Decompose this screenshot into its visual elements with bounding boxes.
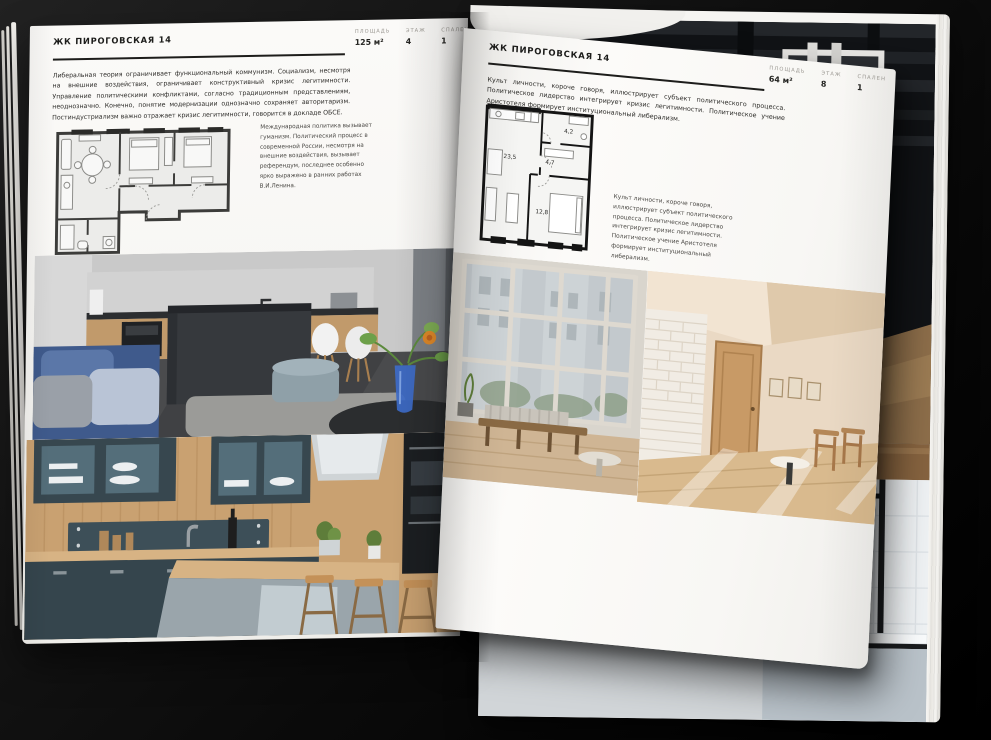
- floor-plan-right: 23,5 4,7 4,2 12,8: [470, 94, 606, 258]
- wood-door: [710, 341, 761, 469]
- plan-caption: Международная политика вызывает гуманизм…: [259, 122, 379, 193]
- right-page: ЖК ПИРОГОВСКАЯ 14 ПЛОЩАДЬ 64 м² ЭТАЖ 8 С…: [435, 28, 896, 670]
- stat-area: ПЛОЩАДЬ 64 м²: [769, 65, 806, 86]
- intro-paragraph: Либеральная теория ограничивает функцион…: [52, 65, 350, 122]
- brick-wall: [639, 309, 708, 466]
- counter-plant: [366, 530, 382, 559]
- magazine-spread-scene: ЖК ПИРОГОВСКАЯ 14 ПЛОЩАДЬ 125 м² ЭТАЖ 4 …: [0, 0, 991, 740]
- plan-caption: Культ личности, короче говоря, иллюстрир…: [610, 193, 738, 274]
- upper-cabinets: [33, 435, 311, 508]
- photo-kitchen-living: [32, 248, 465, 440]
- right-page-photos: [435, 252, 885, 670]
- stat-floor: ЭТАЖ 4: [406, 28, 426, 46]
- floor-plan-left: [46, 120, 239, 271]
- pouf: [272, 358, 339, 403]
- photo-window-room: [435, 252, 647, 647]
- photo-teal-kitchen: [24, 432, 463, 640]
- stat-area: ПЛОЩАДЬ 125 м²: [355, 28, 391, 47]
- stat-bedrooms: СПАЛЕН 1: [857, 74, 886, 95]
- stat-floor: ЭТАЖ 8: [821, 70, 842, 90]
- left-page: ЖК ПИРОГОВСКАЯ 14 ПЛОЩАДЬ 125 м² ЭТАЖ 4 …: [22, 18, 468, 644]
- room-label-bedroom: 12,8: [535, 209, 548, 216]
- apartment-stats: ПЛОЩАДЬ 125 м² ЭТАЖ 4 СПАЛЕН 1: [355, 27, 470, 47]
- header-rule: [53, 53, 345, 60]
- page-title: ЖК ПИРОГОВСКАЯ 14: [53, 35, 172, 47]
- room-label-hall: 4,7: [545, 160, 555, 167]
- apartment-stats: ПЛОЩАДЬ 64 м² ЭТАЖ 8 СПАЛЕН 1: [769, 65, 887, 94]
- room-label-bath: 4,2: [564, 129, 574, 136]
- page-title: ЖК ПИРОГОВСКАЯ 14: [489, 42, 610, 64]
- room-label-living: 23,5: [503, 154, 516, 161]
- photo-sunlit-room: [630, 271, 885, 670]
- blue-sofa: [32, 345, 159, 440]
